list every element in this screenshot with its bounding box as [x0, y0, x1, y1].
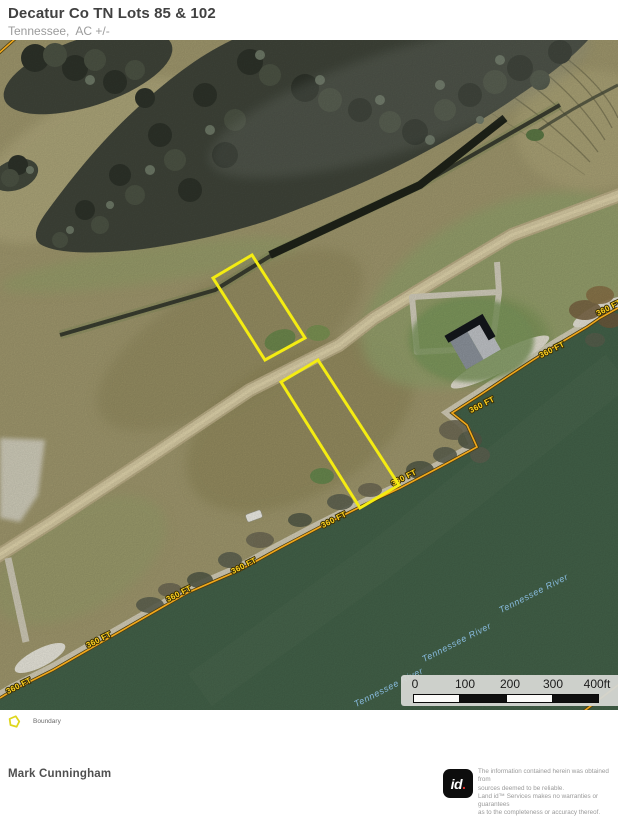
logo-text: id [451, 776, 462, 792]
scale-segment [414, 695, 460, 702]
map-report-page: Decatur Co TN Lots 85 & 102 Tennessee, A… [0, 0, 618, 800]
legend-boundary-label: Boundary [33, 718, 61, 725]
aerial-imagery: 360 FT 360 FT 360 FT 360 FT 360 FT 360 F… [0, 40, 618, 710]
imagery-grain [0, 40, 618, 710]
map-scale-bar: 0 100 200 300 400ft [401, 675, 618, 706]
legend: Boundary [7, 712, 61, 730]
disclaimer-line: Land id™ Services makes no warranties or… [478, 793, 618, 810]
disclaimer-line: sources deemed to be reliable. [478, 785, 618, 793]
scale-tick: 0 [412, 677, 419, 691]
boundary-polygon-icon [7, 714, 21, 729]
scale-tick: 300 [543, 677, 563, 691]
scale-segment [553, 695, 598, 702]
author-name: Mark Cunningham [8, 768, 111, 780]
page-subtitle: Tennessee, AC +/- [8, 24, 110, 38]
scale-segment [460, 695, 506, 702]
scale-tick: 100 [455, 677, 475, 691]
land-id-logo: id. [443, 769, 473, 798]
disclaimer-line: as to the completeness or accuracy there… [478, 809, 618, 817]
scale-tick: 400ft [584, 677, 611, 691]
map-canvas: 360 FT 360 FT 360 FT 360 FT 360 FT 360 F… [0, 40, 618, 710]
scale-segment [507, 695, 553, 702]
logo-dot: . [462, 776, 465, 792]
disclaimer-line: The information contained herein was obt… [478, 768, 618, 785]
disclaimer: The information contained herein was obt… [478, 768, 618, 818]
page-title: Decatur Co TN Lots 85 & 102 [8, 5, 216, 22]
scale-tick: 200 [500, 677, 520, 691]
scale-bar-segments [413, 694, 599, 703]
